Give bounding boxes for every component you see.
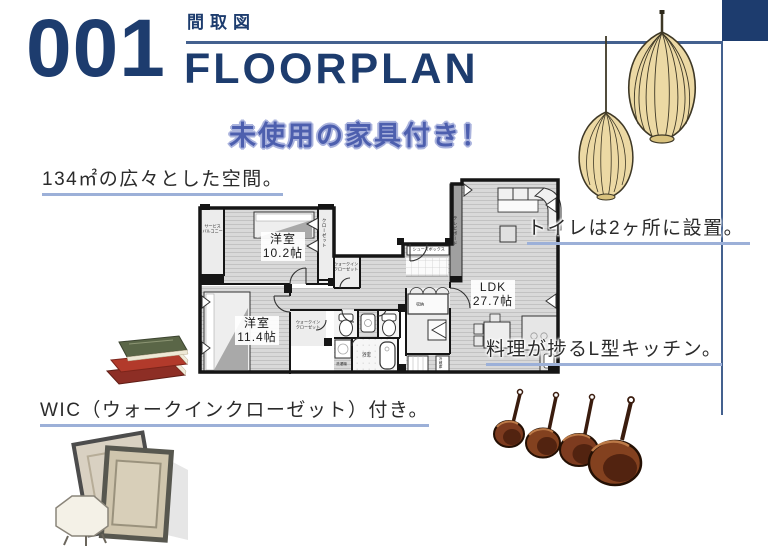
highlight-badge: 未使用の家具付き！ [229, 114, 490, 153]
annotation-toilets: トイレは2ヶ所に設置。 [527, 213, 750, 245]
bedroom2-size: 11.4帖 [237, 330, 276, 344]
pendant-lights-illustration [556, 0, 706, 210]
label-tv-board: テレビボード [452, 216, 457, 246]
label-washer: 洗濯機 [336, 362, 347, 366]
label-wic1: ウォークイン クローゼット [333, 262, 359, 272]
label-shoe-box: シューズボックス [408, 247, 449, 252]
label-bedroom2: 洋室 11.4帖 [222, 316, 292, 345]
picture-frames-illustration [46, 430, 196, 548]
label-bedroom1: 洋室 10.2帖 [250, 232, 316, 261]
ldk-name: LDK [480, 280, 506, 294]
annotation-kitchen: 料理が捗るL型キッチン。 [486, 334, 722, 366]
label-storage: 収納 [416, 302, 424, 307]
copper-pots-illustration [478, 382, 648, 497]
ldk-size: 27.7帖 [473, 294, 513, 308]
category-label: 間取図 [187, 8, 256, 33]
label-ldk: LDK 27.7帖 [460, 280, 526, 309]
corner-accent-box [722, 0, 768, 41]
label-bathroom: 浴室 [362, 352, 371, 357]
page-number: 001 [26, 8, 166, 90]
page-title: FLOORPLAN [184, 46, 479, 93]
label-refrigerator: 冷蔵庫 [438, 357, 442, 369]
label-wic2: ウォークイン クローゼット [290, 320, 326, 330]
annotation-wic: WIC（ウォークインクローゼット）付き。 [40, 395, 429, 427]
bedroom2-name: 洋室 [244, 316, 270, 330]
label-closet: クローゼット [321, 218, 326, 248]
floorplan-flyer-page: 001 間取図 FLOORPLAN 未使用の家具付き！ 134㎡の広々とした空間… [0, 0, 768, 550]
annotation-space: 134㎡の広々とした空間。 [42, 164, 283, 196]
book-stack-illustration [99, 327, 194, 389]
bedroom1-size: 10.2帖 [263, 246, 303, 260]
bedroom1-name: 洋室 [270, 232, 296, 246]
label-service-balcony: サービス バルコニー [200, 224, 225, 234]
